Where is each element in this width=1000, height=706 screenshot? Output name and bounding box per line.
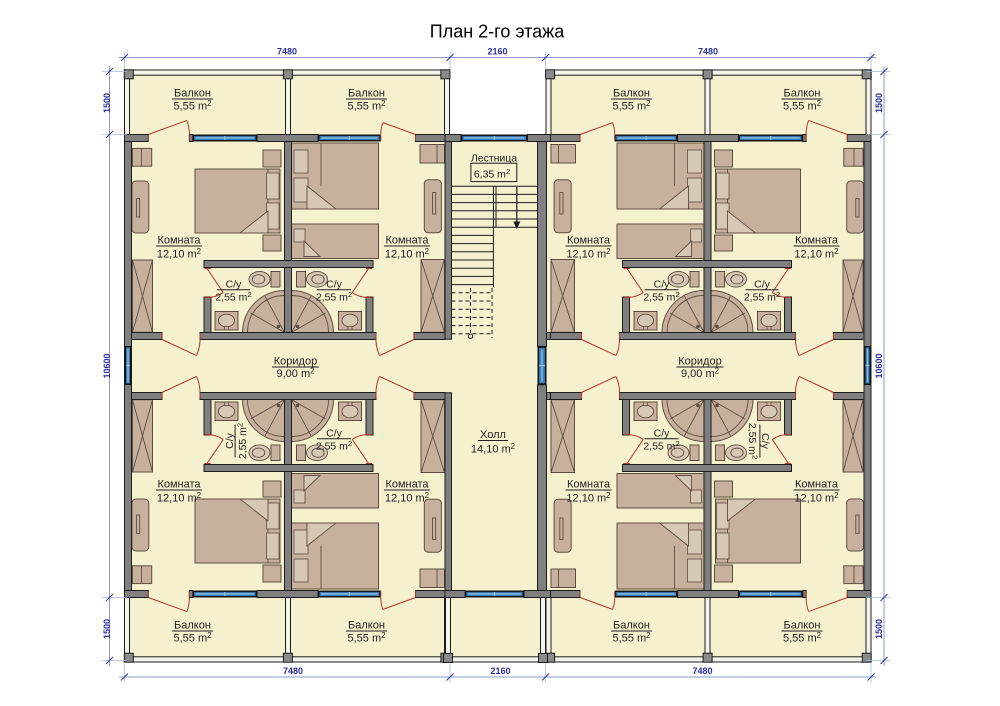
svg-text:5,55 m2: 5,55 m2 <box>783 631 821 645</box>
svg-text:Холл: Холл <box>480 429 506 441</box>
svg-text:12,10 m2: 12,10 m2 <box>566 247 610 261</box>
svg-text:С/у: С/у <box>326 279 343 291</box>
svg-text:5,55 m2: 5,55 m2 <box>612 99 650 113</box>
svg-text:9,00 m2: 9,00 m2 <box>681 366 719 380</box>
svg-text:14,10 m2: 14,10 m2 <box>471 442 515 456</box>
svg-text:10600: 10600 <box>874 353 884 378</box>
svg-text:Балкон: Балкон <box>174 88 211 100</box>
svg-text:12,10 m2: 12,10 m2 <box>157 491 201 505</box>
svg-text:5,55 m2: 5,55 m2 <box>612 631 650 645</box>
svg-text:План 2-го этажа: План 2-го этажа <box>430 22 565 42</box>
svg-text:10600: 10600 <box>102 353 112 378</box>
svg-text:2,55 m2: 2,55 m2 <box>643 439 679 453</box>
svg-text:5,55 m2: 5,55 m2 <box>347 99 385 113</box>
svg-text:5,55 m2: 5,55 m2 <box>173 99 211 113</box>
svg-text:Комната: Комната <box>385 479 429 491</box>
svg-text:7480: 7480 <box>283 666 303 676</box>
svg-text:Балкон: Балкон <box>613 620 650 632</box>
svg-text:1500: 1500 <box>874 619 884 639</box>
svg-text:С/у: С/у <box>654 428 671 440</box>
svg-text:Комната: Комната <box>795 479 839 491</box>
svg-text:1500: 1500 <box>102 619 112 639</box>
svg-text:Комната: Комната <box>567 479 611 491</box>
svg-text:С/у: С/у <box>759 433 771 450</box>
svg-text:Балкон: Балкон <box>348 620 385 632</box>
svg-text:2,55 m2: 2,55 m2 <box>746 423 760 459</box>
svg-text:2160: 2160 <box>490 666 510 676</box>
svg-text:Комната: Комната <box>385 235 429 247</box>
svg-text:1500: 1500 <box>102 93 112 113</box>
svg-text:12,10 m2: 12,10 m2 <box>794 491 838 505</box>
svg-text:2,55 m2: 2,55 m2 <box>316 439 352 453</box>
svg-text:12,10 m2: 12,10 m2 <box>385 247 429 261</box>
svg-text:Балкон: Балкон <box>174 620 211 632</box>
svg-text:С/у: С/у <box>326 428 343 440</box>
svg-text:С/у: С/у <box>226 279 243 291</box>
svg-text:12,10 m2: 12,10 m2 <box>157 247 201 261</box>
svg-text:2,55 m2: 2,55 m2 <box>744 290 780 304</box>
svg-text:5,55 m2: 5,55 m2 <box>173 631 211 645</box>
svg-text:2,55 m2: 2,55 m2 <box>316 290 352 304</box>
svg-text:2,55 m2: 2,55 m2 <box>235 423 249 459</box>
svg-text:5,55 m2: 5,55 m2 <box>783 99 821 113</box>
svg-text:Комната: Комната <box>567 235 611 247</box>
svg-text:12,10 m2: 12,10 m2 <box>566 491 610 505</box>
svg-text:7480: 7480 <box>277 47 297 57</box>
svg-text:Балкон: Балкон <box>784 88 821 100</box>
svg-text:С/у: С/у <box>654 279 671 291</box>
svg-text:2,55 m2: 2,55 m2 <box>215 290 251 304</box>
svg-text:12,10 m2: 12,10 m2 <box>794 247 838 261</box>
svg-text:5,55 m2: 5,55 m2 <box>347 631 385 645</box>
svg-text:Комната: Комната <box>157 235 201 247</box>
svg-text:9,00 m2: 9,00 m2 <box>276 366 314 380</box>
svg-text:Балкон: Балкон <box>613 88 650 100</box>
svg-text:Комната: Комната <box>795 235 839 247</box>
svg-text:12,10 m2: 12,10 m2 <box>385 491 429 505</box>
svg-text:Балкон: Балкон <box>348 88 385 100</box>
svg-text:Комната: Комната <box>157 479 201 491</box>
svg-text:Балкон: Балкон <box>784 620 821 632</box>
svg-text:1500: 1500 <box>874 93 884 113</box>
svg-text:6,35 m2: 6,35 m2 <box>474 167 510 181</box>
svg-text:2160: 2160 <box>487 47 507 57</box>
svg-text:С/у: С/у <box>224 432 236 449</box>
svg-text:7480: 7480 <box>692 666 712 676</box>
svg-text:Лестница: Лестница <box>471 153 517 165</box>
svg-text:7480: 7480 <box>698 47 718 57</box>
svg-text:2,55 m2: 2,55 m2 <box>643 290 679 304</box>
svg-text:С/у: С/у <box>754 279 771 291</box>
